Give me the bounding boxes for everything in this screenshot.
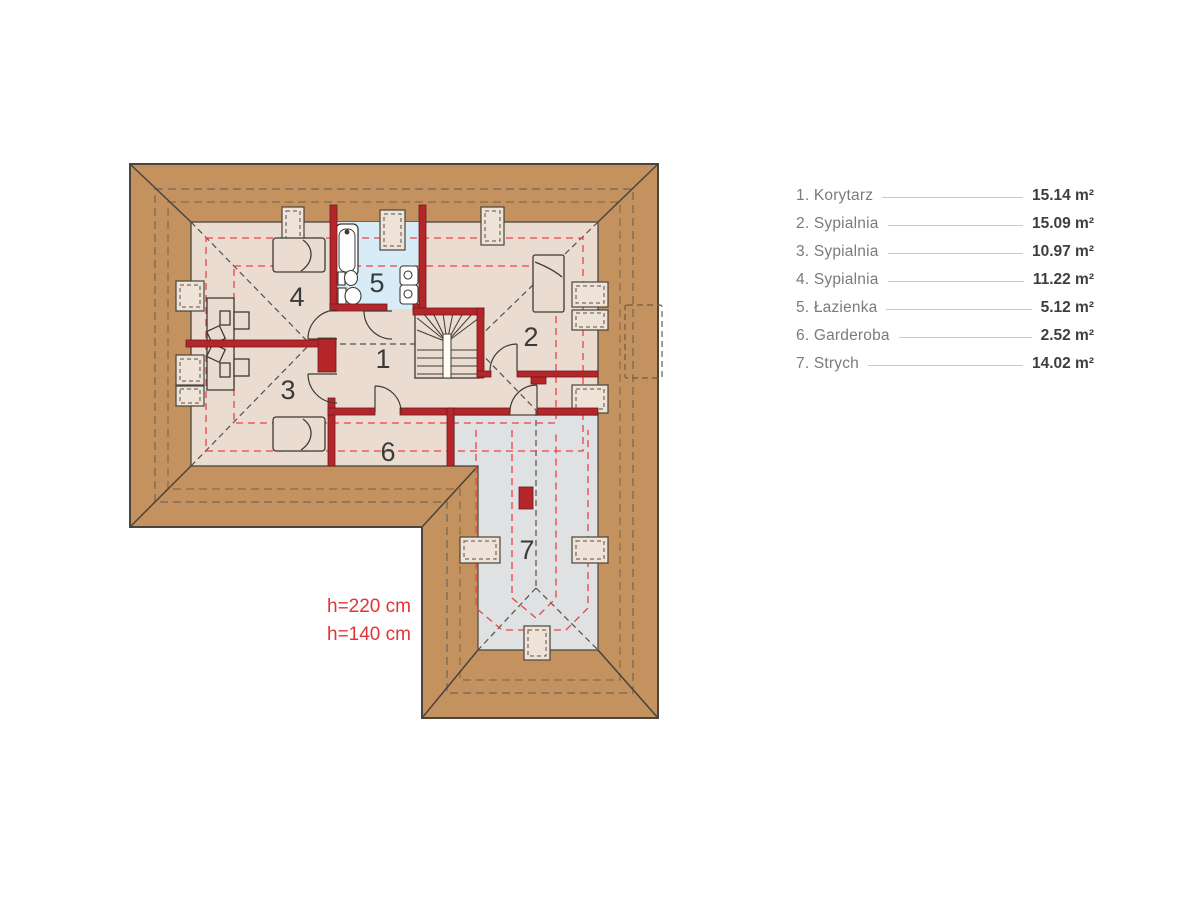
legend-leader-line bbox=[888, 225, 1023, 226]
legend-label: 6. Garderoba bbox=[796, 327, 890, 345]
bed-room3 bbox=[273, 417, 325, 451]
chimney bbox=[519, 487, 533, 509]
legend-area-value: 11.22 m² bbox=[1033, 271, 1094, 289]
legend-label: 7. Strych bbox=[796, 355, 859, 373]
legend-row-garderoba: 6. Garderoba 2.52 m² bbox=[796, 322, 1094, 350]
stair-newel-strip bbox=[443, 334, 451, 378]
legend-area-value: 10.97 m² bbox=[1032, 243, 1094, 261]
washbasins bbox=[400, 266, 418, 304]
legend-leader-line bbox=[888, 281, 1024, 282]
bed-room4 bbox=[273, 238, 325, 272]
legend-leader-line bbox=[899, 337, 1032, 338]
legend-row-korytarz: 1. Korytarz 15.14 m² bbox=[796, 182, 1094, 210]
legend-label: 1. Korytarz bbox=[796, 187, 873, 205]
room-legend: 1. Korytarz 15.14 m² 2. Sypialnia 15.09 … bbox=[796, 182, 1094, 378]
floor-plan-page: 1 2 3 4 5 6 7 h=220 cm h=140 cm 1. Koryt… bbox=[0, 0, 1200, 900]
height-label-140: h=140 cm bbox=[327, 624, 411, 645]
bathtub bbox=[336, 224, 358, 276]
legend-area-value: 15.09 m² bbox=[1032, 215, 1094, 233]
toilet bbox=[338, 288, 361, 305]
legend-label: 2. Sypialnia bbox=[796, 215, 879, 233]
bidet bbox=[338, 271, 358, 286]
room-number-label-1: 1 bbox=[375, 344, 390, 374]
legend-area-value: 5.12 m² bbox=[1041, 299, 1094, 317]
room-number-label-4: 4 bbox=[289, 282, 304, 312]
legend-label: 4. Sypialnia bbox=[796, 271, 879, 289]
room-number-label-6: 6 bbox=[380, 437, 395, 467]
attic-floor-plan-drawing: 1 2 3 4 5 6 7 h=220 cm h=140 cm bbox=[0, 0, 1200, 900]
legend-label: 5. Łazienka bbox=[796, 299, 877, 317]
bed-room2 bbox=[533, 255, 564, 312]
legend-leader-line bbox=[886, 309, 1031, 310]
room-number-label-5: 5 bbox=[369, 268, 384, 298]
legend-row-sypialnia-4: 4. Sypialnia 11.22 m² bbox=[796, 266, 1094, 294]
legend-row-strych: 7. Strych 14.02 m² bbox=[796, 350, 1094, 378]
legend-leader-line bbox=[868, 365, 1023, 366]
legend-label: 3. Sypialnia bbox=[796, 243, 879, 261]
legend-row-sypialnia-2: 2. Sypialnia 15.09 m² bbox=[796, 210, 1094, 238]
legend-area-value: 14.02 m² bbox=[1032, 355, 1094, 373]
window-marker bbox=[531, 377, 546, 384]
legend-leader-line bbox=[882, 197, 1023, 198]
room-number-label-7: 7 bbox=[519, 535, 534, 565]
staircase bbox=[415, 312, 479, 378]
room-number-label-3: 3 bbox=[280, 375, 295, 405]
legend-area-value: 2.52 m² bbox=[1041, 327, 1094, 345]
height-labels: h=220 cm h=140 cm bbox=[327, 596, 411, 645]
legend-area-value: 15.14 m² bbox=[1032, 187, 1094, 205]
legend-leader-line bbox=[888, 253, 1023, 254]
height-label-220: h=220 cm bbox=[327, 596, 411, 617]
room-number-label-2: 2 bbox=[523, 322, 538, 352]
legend-row-lazienka: 5. Łazienka 5.12 m² bbox=[796, 294, 1094, 322]
legend-row-sypialnia-3: 3. Sypialnia 10.97 m² bbox=[796, 238, 1094, 266]
